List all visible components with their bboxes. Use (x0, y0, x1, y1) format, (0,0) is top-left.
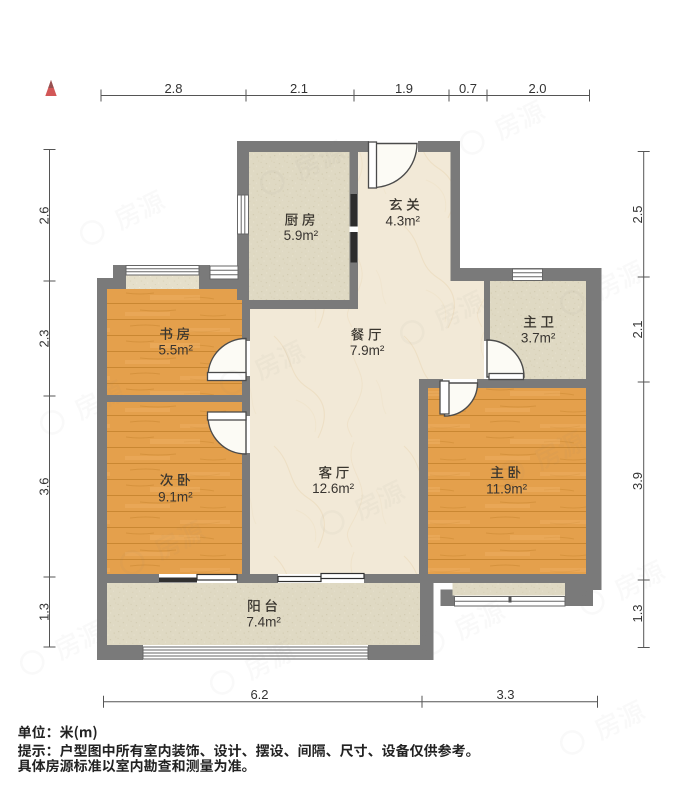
svg-text:2.8: 2.8 (164, 81, 182, 96)
svg-text:7.4m²: 7.4m² (246, 614, 281, 629)
svg-text:2.1: 2.1 (630, 320, 645, 338)
svg-text:3.7m²: 3.7m² (521, 330, 556, 345)
svg-text:4.3m²: 4.3m² (386, 214, 421, 229)
svg-text:11.9m²: 11.9m² (486, 481, 528, 496)
svg-text:1.3: 1.3 (630, 604, 645, 622)
svg-text:2.0: 2.0 (528, 81, 546, 96)
svg-text:2.1: 2.1 (290, 81, 308, 96)
svg-text:2.3: 2.3 (36, 329, 51, 347)
svg-text:2.5: 2.5 (630, 205, 645, 223)
svg-text:1.3: 1.3 (36, 603, 51, 621)
svg-text:2.6: 2.6 (36, 206, 51, 224)
svg-text:0.7: 0.7 (459, 81, 477, 96)
svg-text:12.6m²: 12.6m² (312, 481, 355, 496)
svg-text:9.1m²: 9.1m² (158, 489, 193, 504)
svg-text:3.6: 3.6 (36, 477, 51, 495)
svg-text:3.9: 3.9 (630, 472, 645, 490)
svg-text:5.5m²: 5.5m² (158, 343, 193, 358)
svg-text:1.9: 1.9 (395, 81, 413, 96)
svg-text:7.9m²: 7.9m² (350, 343, 385, 358)
svg-text:6.2: 6.2 (250, 687, 268, 702)
svg-text:3.3: 3.3 (496, 687, 514, 702)
svg-text:5.9m²: 5.9m² (284, 228, 319, 243)
